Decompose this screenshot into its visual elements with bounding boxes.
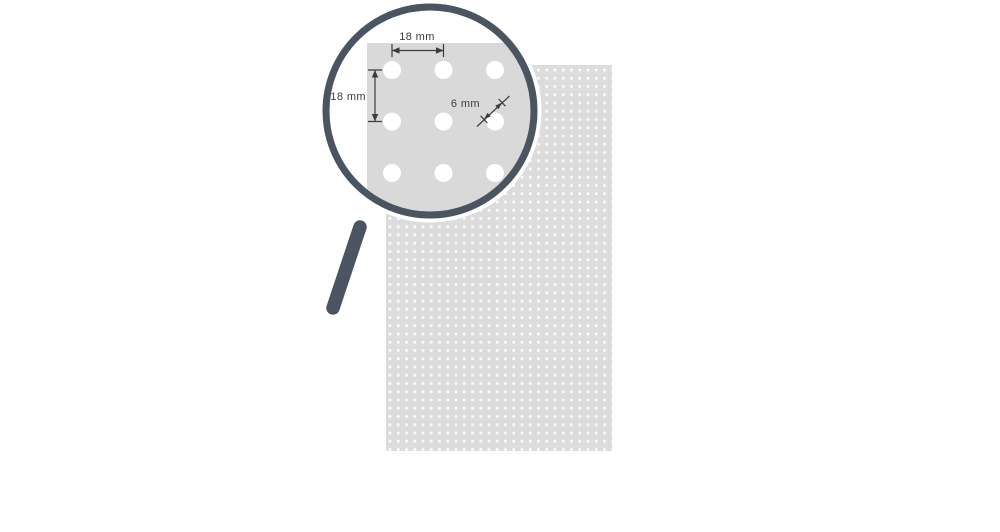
hole xyxy=(486,61,504,79)
hole xyxy=(435,61,453,79)
pitch-horizontal-label: 18 mm xyxy=(399,31,435,43)
illustration: 18 mm 18 mm xyxy=(0,0,1000,532)
hole xyxy=(383,61,401,79)
hole xyxy=(383,164,401,182)
hole xyxy=(486,164,504,182)
hole xyxy=(383,113,401,131)
hole xyxy=(435,164,453,182)
pitch-vertical-label: 18 mm xyxy=(330,91,366,103)
hole xyxy=(435,113,453,131)
magnifier-handle xyxy=(333,227,360,308)
hole-diameter-label: 6 mm xyxy=(451,98,480,110)
scene-canvas: 18 mm 18 mm xyxy=(0,0,1000,532)
